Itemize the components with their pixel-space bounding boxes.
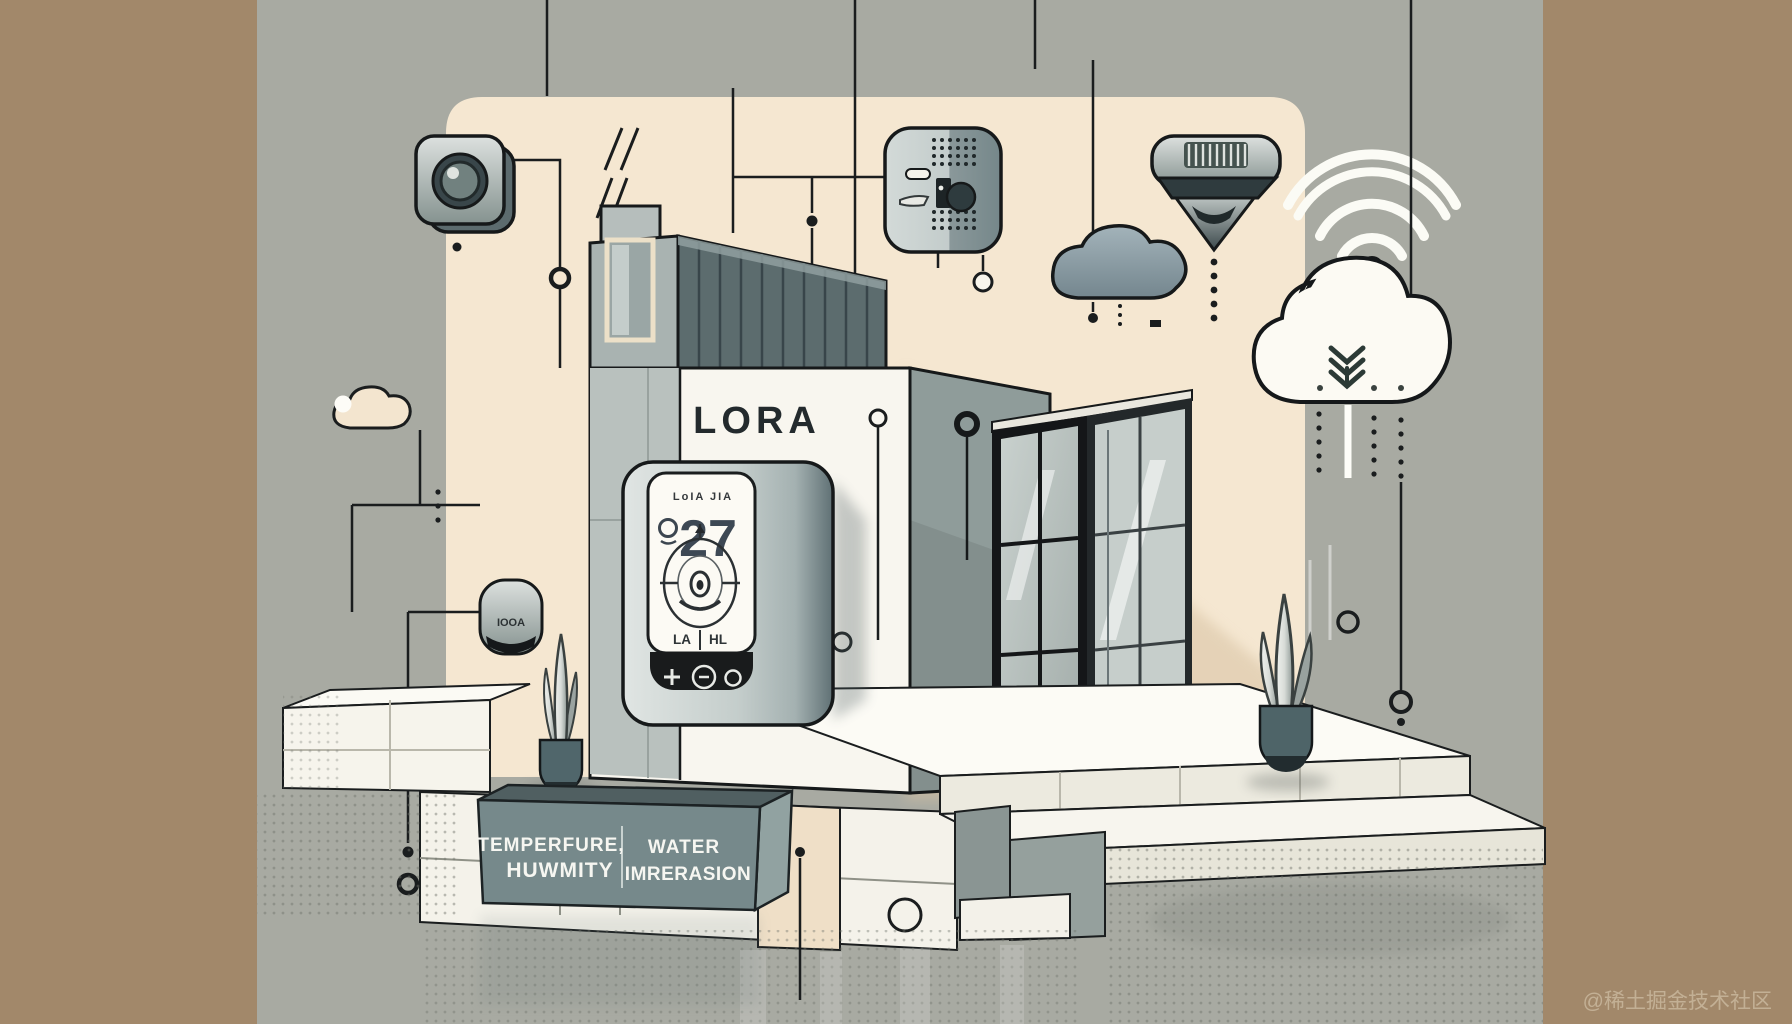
sign-left-line1: TEMPERFURE, <box>477 835 624 856</box>
thermostat: LoIA JIA 27 LA HL <box>623 462 866 725</box>
thermostat-brand: LoIA JIA <box>673 491 733 503</box>
camera-sensor-icon <box>416 136 514 232</box>
wall-device-label: IOOA <box>497 617 525 629</box>
illustration-canvas: IOOA LORA <box>0 0 1792 1024</box>
network-node-icon <box>889 899 921 931</box>
network-node-icon <box>335 396 352 413</box>
left-side-panel <box>0 0 257 1024</box>
right-side-panel <box>1543 0 1792 1024</box>
sign-left-line2: HUWMITY <box>506 859 613 882</box>
sign-right-line2: IMRERASION <box>625 864 751 885</box>
thermostat-low-label: LA <box>673 632 691 647</box>
building-label: LORA <box>693 400 821 442</box>
sign-right-line1: WATER <box>648 837 720 858</box>
thermostat-high-label: HL <box>709 632 727 647</box>
watermark: @稀土掘金技术社区 <box>1583 990 1772 1013</box>
speaker-device-icon <box>885 128 1001 252</box>
sensor-sign: TEMPERFURE, HUWMITY WATER IMRERASION <box>477 785 792 910</box>
